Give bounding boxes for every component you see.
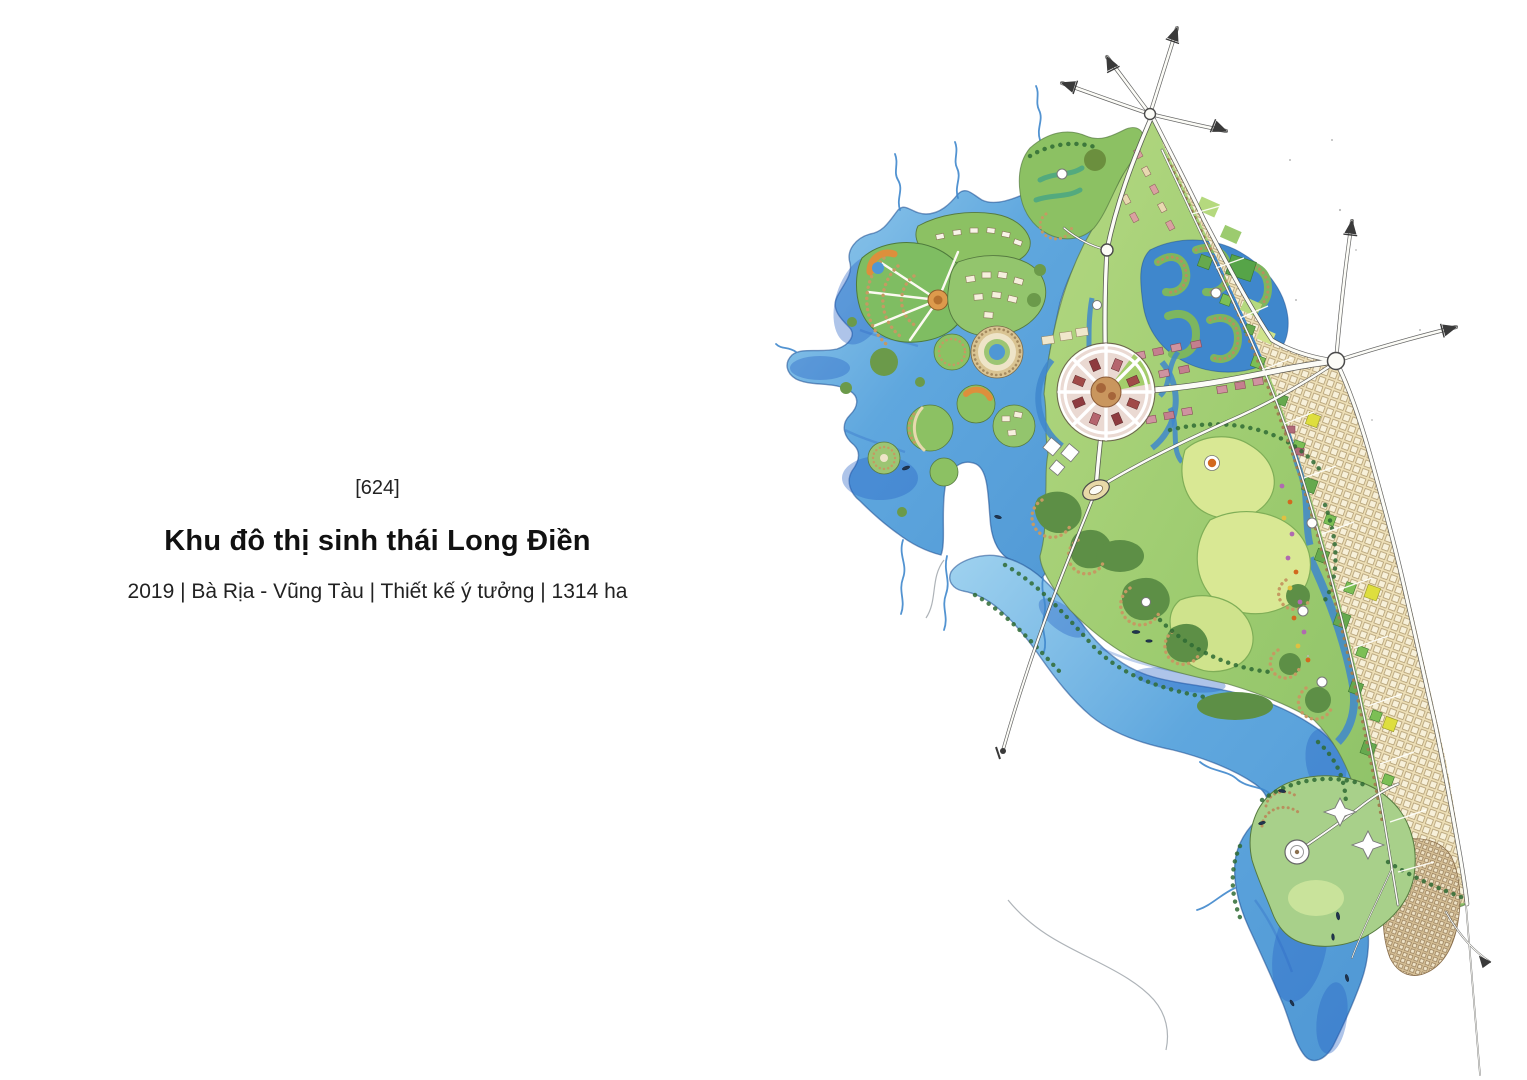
- orange-fan-islet: [957, 385, 995, 423]
- roundabout-east: [1328, 353, 1345, 370]
- plaza-center-blob-b: [1108, 392, 1116, 400]
- plaza-center-blob-a: [1096, 383, 1106, 393]
- masterplan-illustration: [0, 0, 1527, 1080]
- round-islet-c: [930, 458, 958, 486]
- crescent-lake: [872, 262, 884, 274]
- round-islet-b: [870, 348, 898, 376]
- fan-islet-south: [907, 405, 953, 451]
- islet-with-blocks: [993, 405, 1035, 447]
- fan-island-spiral-core: [934, 296, 943, 305]
- resort-circle-plaza: [1285, 840, 1309, 864]
- masterplan-figure: [0, 0, 1527, 1080]
- axis-junction-node: [1145, 109, 1156, 120]
- roundabout-north: [1101, 244, 1113, 256]
- ring-islet-sw: [868, 442, 900, 474]
- golf-green-dot: [1208, 459, 1216, 467]
- ring-island: [971, 326, 1023, 378]
- portfolio-page: [624] Khu đô thị sinh thái Long Điền 201…: [0, 0, 1527, 1080]
- pier-cap: [996, 747, 1006, 759]
- plaza-center: [1091, 377, 1121, 407]
